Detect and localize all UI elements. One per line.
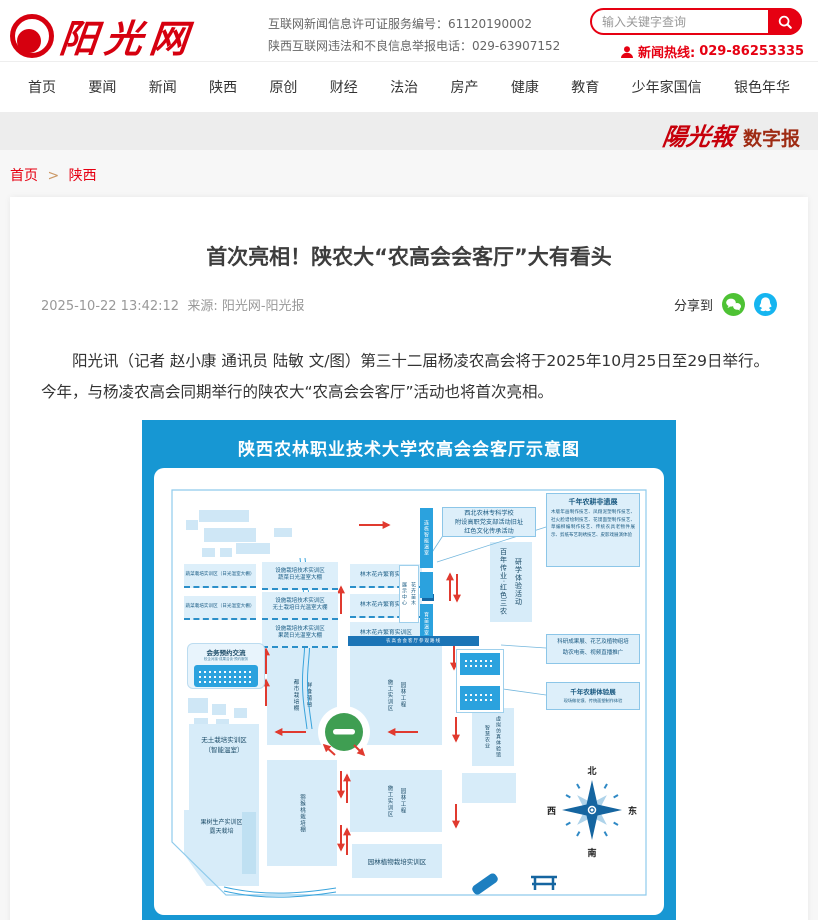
route-bar-label: 农高会会客厅参观路线 (386, 638, 441, 644)
kiwi-block: 猕猴桃栽培棚 (267, 760, 337, 866)
research-expo-box: 科研成果展、花艺及植物组培 助农电商、视频直播推广 (546, 634, 640, 664)
facility-zone-box: 设施栽培技术实训区 无土栽培日光温室大棚 (262, 592, 338, 620)
nav-item-finance[interactable]: 财经 (330, 77, 358, 97)
building-block (212, 704, 226, 715)
building-block (204, 528, 256, 542)
display-center-label: 展示中心 (401, 582, 408, 606)
century-heritage-block: 百年传业·红色三农 研学体验活动 (490, 542, 532, 622)
site-logo[interactable]: 阳光网 (10, 8, 195, 63)
building-block (242, 812, 256, 874)
breadcrumb-current[interactable]: 陕西 (69, 168, 97, 184)
veg-zone-label: 蔬菜栽培实训区（日光温室大棚） (186, 572, 255, 578)
building-block (234, 708, 247, 718)
breadcrumb: 首页 > 陕西 (0, 150, 818, 197)
meeting-title: 会务预约交流 (188, 647, 264, 657)
qq-share-icon[interactable] (754, 293, 777, 316)
veg-zone-label: 蔬菜栽培实训区（日光温室大棚） (186, 604, 255, 610)
map-figure: 陕西农林职业技术大学农高会会客厅示意图 都市栽培棚 鲜食葡萄 (142, 420, 676, 920)
site-header: 阳光网 互联网新闻信息许可证服务编号：61120190002 陕西互联网违法和不… (0, 0, 818, 62)
bench-icon (531, 877, 557, 890)
facility-zone-sub: 无土栽培日光温室大棚 (272, 605, 327, 612)
article-source: 来源: 阳光网-阳光报 (187, 299, 304, 314)
meeting-schedule-panel (194, 665, 258, 687)
soilless-label-2: （智能温室） (189, 746, 259, 756)
compass-west-label: 西 (547, 806, 556, 817)
research-expo-line: 科研成果展、花艺及植物组培 (547, 637, 639, 648)
plant-cultivation-label: 园林植物栽培实训区 (368, 856, 427, 866)
urban-grape-block: 都市栽培棚 鲜食葡萄 (267, 645, 337, 745)
landscape-label-left: 施工实训区 (386, 785, 394, 818)
century-label-right: 研学体验活动 (514, 558, 524, 606)
building-block (236, 543, 270, 554)
red-site-line: 红色文化传承活动 (443, 528, 535, 537)
article-meta: 2025-10-22 13:42:12 来源: 阳光网-阳光报 分享到 (41, 293, 777, 316)
map-panel: 都市栽培棚 鲜食葡萄 猕猴桃栽培棚 施工实训区 园林工程 施工实训区 园林工程 (154, 468, 664, 915)
building-block (274, 528, 292, 537)
greenhouse-bar (420, 572, 433, 598)
meeting-box: 会务预约交流 校企对接·成果洽谈·预约服务 (187, 643, 265, 689)
heritage-expo-box: 千年农耕非遗展 木版年画制作技艺、凤翔泥塑制作技艺、社火脸谱绘制技艺、花馍面塑制… (546, 493, 640, 567)
building-block (199, 510, 249, 522)
building-block (220, 548, 232, 557)
nav-item-news[interactable]: 新闻 (149, 77, 177, 97)
striped-greenhouse (460, 653, 500, 675)
search-box (590, 8, 802, 35)
smart-agriculture-block: 智慧农业 虚拟仿真体验馆 (472, 708, 514, 766)
heritage-expo-title: 千年农耕非遗展 (551, 497, 635, 507)
meeting-sub: 校企对接·成果洽谈·预约服务 (188, 657, 264, 662)
hotline-label: 新闻热线: (638, 42, 695, 61)
greenhouse-bar: 连栋智能温室 (420, 508, 433, 568)
breadcrumb-home[interactable]: 首页 (10, 168, 38, 184)
site-logo-text: 阳光网 (57, 8, 198, 63)
article-title: 首次亮相！陕农大“农高会会客厅”大有看头 (10, 241, 808, 271)
share-label: 分享到 (674, 295, 713, 314)
greenhouse-bar-label: 育苗温室 (423, 612, 430, 636)
nav-item-shaanxi[interactable]: 陕西 (209, 77, 237, 97)
compass-rose: 北 南 西 东 (547, 765, 637, 859)
soilless-label-1: 无土栽培实训区 (189, 736, 259, 746)
paint-roller-icon (471, 872, 500, 896)
compass-south-label: 南 (587, 847, 596, 859)
article-paragraph: 阳光讯（记者 赵小康 通讯员 陆敏 文/图）第三十二届杨凌农高会将于2025年1… (41, 346, 777, 408)
century-label-left: 百年传业·红色三农 (499, 548, 509, 615)
research-expo-line: 助农电商、视频直播推广 (547, 648, 639, 659)
nav-item-original[interactable]: 原创 (269, 77, 297, 97)
digital-paper-logo[interactable]: 陽光報 数字报 (663, 117, 800, 152)
building-block (188, 698, 208, 713)
grape-label-left: 都市栽培棚 (292, 679, 300, 712)
paper-name: 陽光報 (661, 117, 738, 152)
facility-zone-box: 设施栽培技术实训区 蔬菜日光温室大棚 (262, 562, 338, 590)
map-title: 陕西农林职业技术大学农高会会客厅示意图 (142, 420, 676, 460)
landscape-block-top: 施工实训区 园林工程 (350, 645, 442, 745)
nav-item-law[interactable]: 法治 (390, 77, 418, 97)
heritage-expo-body: 木版年画制作技艺、凤翔泥塑制作技艺、社火脸谱绘制技艺、花馍面塑制作技艺、草编柳编… (551, 509, 635, 540)
nav-item-home[interactable]: 首页 (28, 77, 56, 97)
report-line: 陕西互联网违法和不良信息举报电话：029-63907152 (268, 35, 560, 57)
soilless-zone: 无土栽培实训区 （智能温室） (189, 724, 259, 820)
nav-item-property[interactable]: 房产 (451, 77, 479, 97)
farming-experience-box: 千年农耕体验展 现场做花馍、传统面塑制作体验 (546, 682, 640, 710)
plant-cultivation-box: 园林植物栽培实训区 (352, 844, 442, 878)
facility-zone-box: 设施栽培技术实训区 果蔬日光温室大棚 (262, 620, 338, 648)
nav-item-education[interactable]: 教育 (571, 77, 599, 97)
facility-zone-sub: 果蔬日光温室大棚 (278, 633, 322, 640)
search-button[interactable] (768, 8, 802, 35)
building-block (186, 520, 198, 530)
search-icon (777, 14, 793, 30)
red-site-line: 附设高职党支部活动旧址 (443, 519, 535, 528)
building-block (462, 773, 516, 803)
news-hotline: 新闻热线: 029-86253335 (620, 42, 804, 61)
facility-zone-title: 设施栽培技术实训区 (275, 598, 325, 605)
landscape-label-right: 园林工程 (399, 682, 407, 708)
search-input[interactable] (592, 15, 768, 29)
breadcrumb-separator: > (47, 168, 59, 184)
veg-zone-box: 蔬菜栽培实训区（日光温室大棚） (184, 564, 256, 588)
license-info: 互联网新闻信息许可证服务编号：61120190002 陕西互联网违法和不良信息举… (268, 13, 560, 57)
license-line: 互联网新闻信息许可证服务编号：61120190002 (268, 13, 560, 35)
display-center-label: 花卉苗木 (410, 582, 417, 606)
compass-east-label: 东 (628, 805, 637, 817)
nav-item-health[interactable]: 健康 (511, 77, 539, 97)
fruit-zone: 果树生产实训区 露天栽培 (184, 810, 259, 886)
nav-item-yaowen[interactable]: 要闻 (88, 77, 116, 97)
striped-greenhouse (460, 686, 500, 710)
red-culture-site-box: 西北农林专科学校 附设高职党支部活动旧址 红色文化传承活动 (442, 507, 536, 537)
facility-zone-title: 设施栽培技术实训区 (275, 568, 325, 575)
facility-zone-title: 设施栽培技术实训区 (275, 626, 325, 633)
farming-experience-sub: 现场做花馍、传统面塑制作体验 (547, 698, 639, 704)
sun-logo-icon (10, 14, 54, 58)
landscape-label-right: 园林工程 (399, 788, 407, 814)
building-block (202, 548, 215, 557)
grape-label-right: 鲜食葡萄 (305, 682, 313, 708)
nav-item-silver[interactable]: 银色年华 (734, 77, 790, 97)
landscape-label-left: 施工实训区 (386, 679, 394, 712)
person-icon (620, 45, 634, 59)
smart-label-left: 智慧农业 (484, 725, 491, 749)
landscape-block-bottom: 施工实训区 园林工程 (350, 770, 442, 832)
compass-north-label: 北 (587, 765, 596, 777)
hotline-number: 029-86253335 (699, 44, 804, 59)
facility-zone-sub: 蔬菜日光温室大棚 (278, 575, 322, 582)
wechat-share-icon[interactable] (722, 293, 745, 316)
smart-label-right: 虚拟仿真体验馆 (495, 716, 502, 758)
kiwi-label: 猕猴桃栽培棚 (298, 794, 306, 833)
article-card: 首次亮相！陕农大“农高会会客厅”大有看头 2025-10-22 13:42:12… (10, 197, 808, 920)
sub-header-strip: 陽光報 数字报 (0, 112, 818, 150)
main-nav: 首页 要闻 新闻 陕西 原创 财经 法治 房产 健康 教育 少年家国信 银色年华 (0, 62, 818, 112)
veg-zone-box: 蔬菜栽培实训区（日光温室大棚） (184, 596, 256, 620)
nav-item-youth[interactable]: 少年家国信 (632, 77, 702, 97)
route-bar: 农高会会客厅参观路线 (348, 636, 479, 646)
greenhouse-bar-label: 连栋智能温室 (423, 520, 430, 556)
digital-label: 数字报 (743, 124, 800, 151)
article-date: 2025-10-22 13:42:12 (41, 299, 179, 314)
farming-experience-title: 千年农耕体验展 (547, 686, 639, 696)
display-center-box: 展示中心 花卉苗木 (399, 565, 419, 623)
red-site-line: 西北农林专科学校 (443, 510, 535, 519)
